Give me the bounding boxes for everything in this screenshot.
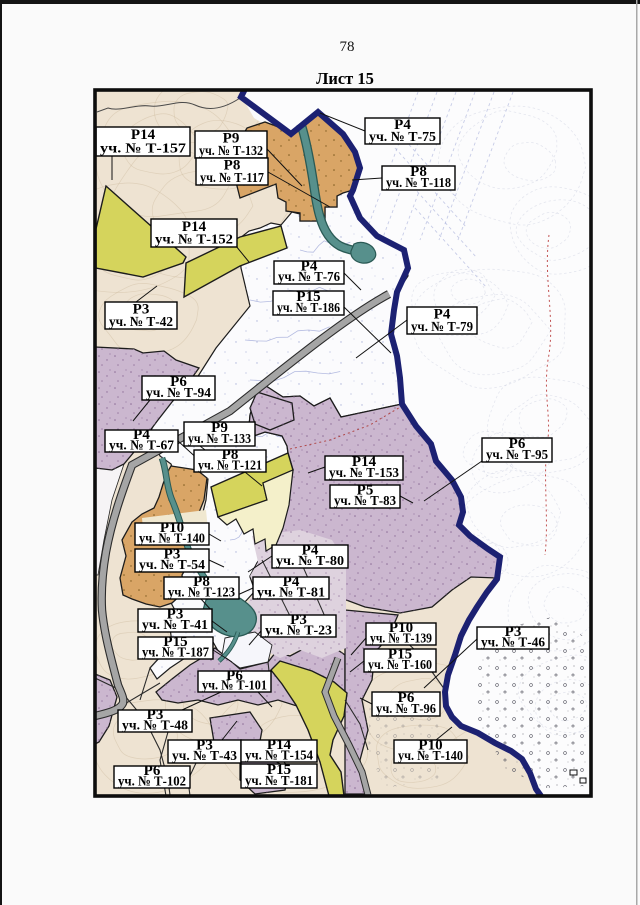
svg-text:уч. № Т-140: уч. № Т-140: [139, 531, 205, 546]
svg-text:уч. № Т-23: уч. № Т-23: [265, 623, 332, 638]
svg-text:уч. № Т-187: уч. № Т-187: [142, 645, 209, 660]
svg-text:уч. № Т-48: уч. № Т-48: [122, 718, 188, 733]
svg-text:уч. № Т-117: уч. № Т-117: [200, 171, 264, 186]
svg-text:уч. № Т-139: уч. № Т-139: [370, 631, 432, 646]
svg-text:уч. № Т-79: уч. № Т-79: [411, 320, 473, 335]
svg-text:уч. № Т-67: уч. № Т-67: [109, 438, 174, 453]
svg-text:уч. № Т-121: уч. № Т-121: [198, 458, 262, 473]
svg-text:уч. № Т-118: уч. № Т-118: [386, 176, 451, 191]
svg-text:уч. № Т-54: уч. № Т-54: [139, 558, 205, 573]
svg-text:78: 78: [340, 39, 355, 55]
svg-text:уч. № Т-94: уч. № Т-94: [146, 386, 211, 401]
svg-text:уч. № Т-102: уч. № Т-102: [118, 774, 186, 789]
svg-text:уч. № Т-76: уч. № Т-76: [278, 270, 340, 285]
svg-text:уч. № Т-80: уч. № Т-80: [276, 554, 344, 569]
svg-text:уч. № Т-181: уч. № Т-181: [245, 774, 313, 789]
svg-text:уч. № Т-75: уч. № Т-75: [369, 130, 436, 145]
svg-text:Лист 15: Лист 15: [316, 69, 374, 88]
svg-text:уч. № Т-123: уч. № Т-123: [168, 585, 235, 600]
svg-text:уч. № Т-140: уч. № Т-140: [398, 749, 463, 764]
svg-text:уч. № Т-42: уч. № Т-42: [109, 315, 173, 330]
svg-text:уч. № Т-83: уч. № Т-83: [334, 494, 396, 509]
svg-text:уч. № Т-186: уч. № Т-186: [277, 301, 340, 316]
svg-text:уч. № Т-101: уч. № Т-101: [202, 679, 267, 694]
svg-text:уч. № Т-95: уч. № Т-95: [486, 448, 548, 463]
svg-text:уч. № Т-43: уч. № Т-43: [172, 749, 237, 764]
svg-text:уч. № Т-160: уч. № Т-160: [368, 658, 432, 673]
svg-text:уч. № Т-153: уч. № Т-153: [329, 466, 399, 481]
svg-text:уч. № Т-46: уч. № Т-46: [481, 635, 545, 650]
svg-text:уч. № Т-152: уч. № Т-152: [155, 233, 233, 248]
svg-text:уч. № Т-157: уч. № Т-157: [100, 142, 186, 157]
svg-text:уч. № Т-96: уч. № Т-96: [376, 702, 436, 717]
svg-text:уч. № Т-41: уч. № Т-41: [142, 618, 208, 633]
svg-text:уч. № Т-133: уч. № Т-133: [188, 432, 251, 447]
svg-text:уч. № Т-81: уч. № Т-81: [257, 585, 325, 600]
